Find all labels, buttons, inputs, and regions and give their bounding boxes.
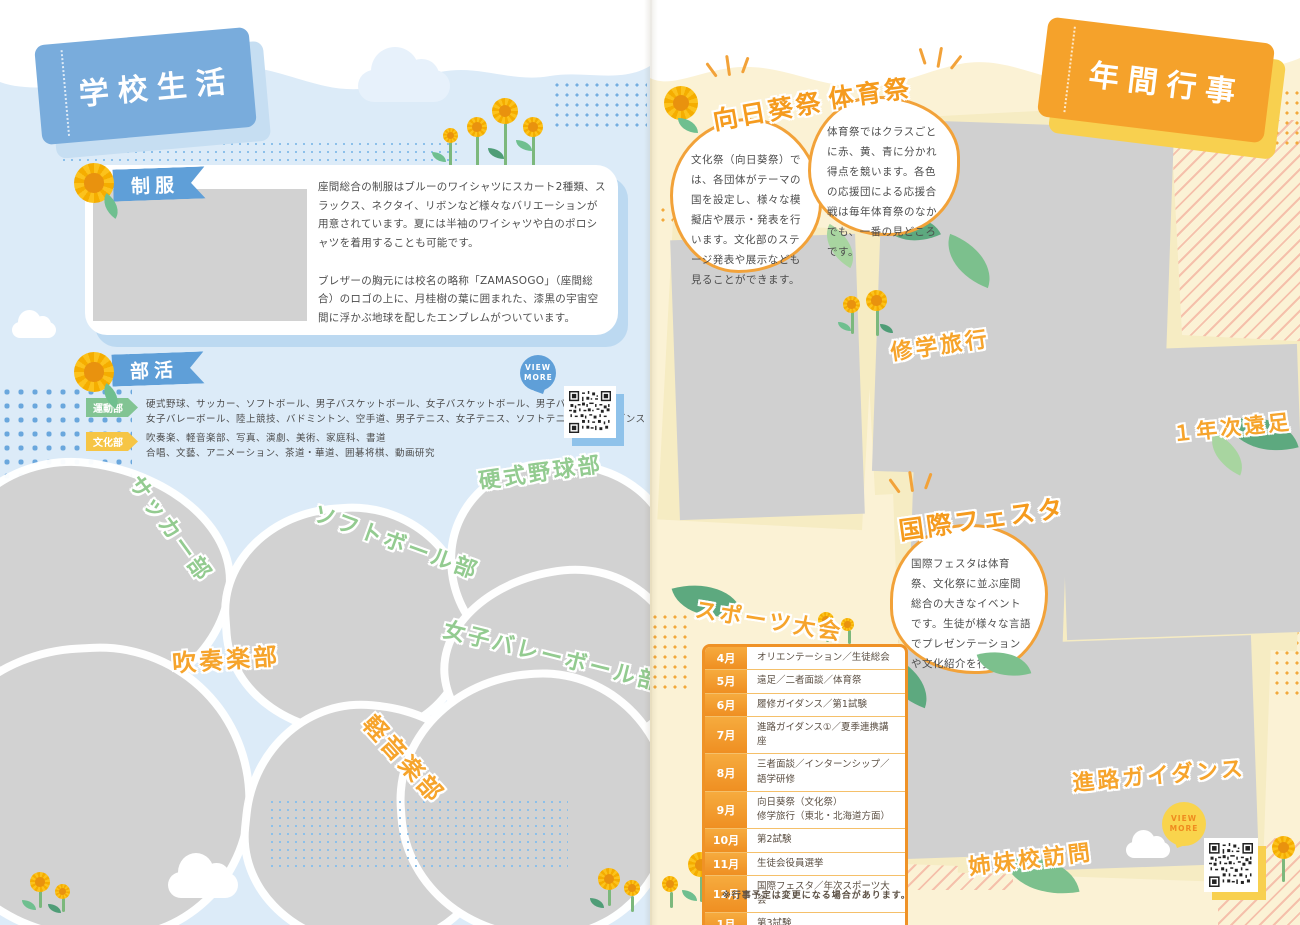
schedule-event: 履修ガイダンス／第1試験 — [749, 694, 905, 716]
view-more-button[interactable]: VIEW MORE — [1162, 802, 1206, 846]
photo-label: スポーツ大会 — [693, 592, 846, 647]
schedule-month: 8月 — [705, 754, 749, 791]
schedule-month: 4月 — [705, 647, 749, 669]
schedule-row: 9月向日葵祭（文化祭） 修学旅行（東北・北海道方面） — [705, 791, 905, 829]
sunflower-icon — [664, 86, 698, 120]
page-title-ticket: 学校生活 — [34, 27, 257, 145]
sunflower-icon — [523, 117, 543, 137]
schedule-row: 8月三者面談／インターンシップ／語学研修 — [705, 753, 905, 791]
schedule-month: 10月 — [705, 829, 749, 851]
festival-bubble: 国際フェスタは体育祭、文化祭に並ぶ座間総合の大きなイベントです。生徒が様々な言語… — [890, 524, 1048, 674]
page-title: 学校生活 — [55, 56, 236, 115]
sunflower-stem — [39, 890, 42, 908]
uniform-heading-ribbon: 制服 — [112, 166, 205, 201]
sunflower-icon — [866, 290, 887, 311]
sunflower-stem — [1282, 858, 1285, 882]
schedule-table: 4月オリエンテーション／生徒総会 5月遠足／二者面談／体育祭 6月履修ガイダンス… — [702, 644, 908, 925]
sunflower-stem — [631, 896, 634, 912]
cloud-icon — [1126, 842, 1170, 858]
club-heading-ribbon: 部活 — [111, 351, 204, 386]
dots-pattern — [268, 798, 568, 870]
schedule-event: 遠足／二者面談／体育祭 — [749, 670, 905, 692]
view-more-label: VIEW MORE — [1169, 814, 1199, 834]
sunflower-stem — [851, 312, 854, 334]
schedule-month: 7月 — [705, 717, 749, 754]
festival-desc: 文化祭（向日葵祭）では、各団体がテーマの国を設定し、様々な模擬店や展示・発表を行… — [691, 151, 805, 291]
schedule-event: オリエンテーション／生徒総会 — [749, 647, 905, 669]
schedule-note: ※行事予定は変更になる場合があります。 — [722, 888, 911, 901]
page-school-life: 学校生活 座間総合の制服はブルーのワイシャツにスカート2種類、スラックス、ネクタ… — [0, 0, 650, 925]
schedule-month: 1月 — [705, 913, 749, 925]
page-annual-events: 年間行事 向日葵祭 文化祭（向日葵祭）では、各団体がテーマの国を設定し、様々な模… — [650, 0, 1300, 925]
view-more-button[interactable]: VIEW MORE — [520, 355, 556, 391]
cloud-icon — [358, 70, 450, 102]
schedule-row: 5月遠足／二者面談／体育祭 — [705, 669, 905, 692]
schedule-row: 6月履修ガイダンス／第1試験 — [705, 693, 905, 716]
cloud-icon — [168, 872, 238, 898]
uniform-paragraph: ブレザーの胸元には校名の略称「ZAMASOGO」（座間総合）のロゴの上に、月桂樹… — [318, 272, 606, 328]
schedule-row: 4月オリエンテーション／生徒総会 — [705, 647, 905, 669]
culture-club-list: 合唱、文藝、アニメーション、茶道・華道、囲碁将棋、動画研究 — [146, 445, 435, 459]
sunflower-icon — [30, 872, 50, 892]
schedule-event: 第2試験 — [749, 829, 905, 851]
sunflower-stem — [670, 892, 673, 908]
uniform-paragraph: 座間総合の制服はブルーのワイシャツにスカート2種類、スラックス、ネクタイ、リボン… — [318, 178, 606, 253]
sunflower-icon — [843, 296, 860, 313]
schedule-event: 進路ガイダンス①／夏季連携講座 — [749, 717, 905, 754]
cloud-icon — [12, 322, 56, 338]
schedule-row: 7月進路ガイダンス①／夏季連携講座 — [705, 716, 905, 754]
sunflower-stem — [449, 142, 452, 166]
culture-club-tag: 文化部 — [86, 432, 138, 451]
sunflower-icon — [598, 868, 620, 890]
schedule-event: 第3試験 — [749, 913, 905, 925]
schedule-row: 11月生徒会役員選挙 — [705, 852, 905, 875]
uniform-photo-placeholder — [93, 189, 307, 321]
sunflower-stem — [62, 898, 65, 912]
sunflower-icon — [624, 880, 640, 896]
schedule-row: 10月第2試験 — [705, 828, 905, 851]
sunflower-stem — [476, 136, 479, 166]
club-heading: 部活 — [130, 355, 179, 384]
schedule-month: 11月 — [705, 853, 749, 875]
leaf-icon — [678, 118, 698, 133]
sunflower-stem — [504, 122, 507, 166]
schedule-event: 三者面談／インターンシップ／語学研修 — [749, 754, 905, 791]
page-title: 年間行事 — [1065, 47, 1247, 112]
festival-desc: 体育祭ではクラスごとに赤、黄、青に分かれ得点を競います。各色の応援団による応援合… — [827, 123, 943, 263]
burst-icon — [703, 43, 753, 79]
sunflower-icon — [662, 876, 678, 892]
sunflower-icon — [467, 117, 487, 137]
schedule-month: 9月 — [705, 792, 749, 829]
festival-bubble: 体育祭ではクラスごとに赤、黄、青に分かれ得点を競います。各色の応援団による応援合… — [808, 96, 960, 236]
qr-code[interactable] — [1204, 838, 1258, 892]
schedule-event: 向日葵祭（文化祭） 修学旅行（東北・北海道方面） — [749, 792, 905, 829]
uniform-section: 座間総合の制服はブルーのワイシャツにスカート2種類、スラックス、ネクタイ、リボン… — [85, 165, 618, 335]
photo-placeholder — [1057, 344, 1300, 640]
dots-pattern — [650, 612, 692, 690]
schedule-month: 6月 — [705, 694, 749, 716]
culture-club-list: 吹奏楽、軽音楽部、写真、演劇、美術、家庭科、書道 — [146, 430, 386, 444]
qr-code[interactable] — [564, 386, 616, 438]
photo-label: 吹奏楽部 — [171, 636, 281, 678]
sunflower-stem — [848, 630, 851, 644]
view-more-label: VIEW MORE — [524, 363, 552, 383]
uniform-heading: 制服 — [131, 170, 180, 199]
schedule-row: 1月第3試験 — [705, 912, 905, 925]
leaf-icon — [488, 148, 504, 159]
sunflower-icon — [55, 884, 70, 899]
sunflower-icon — [1272, 836, 1295, 859]
festival-bubble: 文化祭（向日葵祭）では、各団体がテーマの国を設定し、様々な模擬店や展示・発表を行… — [670, 118, 822, 273]
brochure-spread: 学校生活 座間総合の制服はブルーのワイシャツにスカート2種類、スラックス、ネクタ… — [0, 0, 1300, 925]
schedule-event: 生徒会役員選挙 — [749, 853, 905, 875]
tag-label: 文化部 — [93, 434, 123, 449]
sunflower-stem — [532, 136, 535, 166]
leaf-icon — [516, 140, 532, 151]
burst-icon — [886, 459, 936, 495]
sunflower-icon — [443, 128, 458, 143]
leaf-icon — [682, 890, 697, 901]
sunflower-stem — [876, 310, 879, 336]
schedule-month: 5月 — [705, 670, 749, 692]
